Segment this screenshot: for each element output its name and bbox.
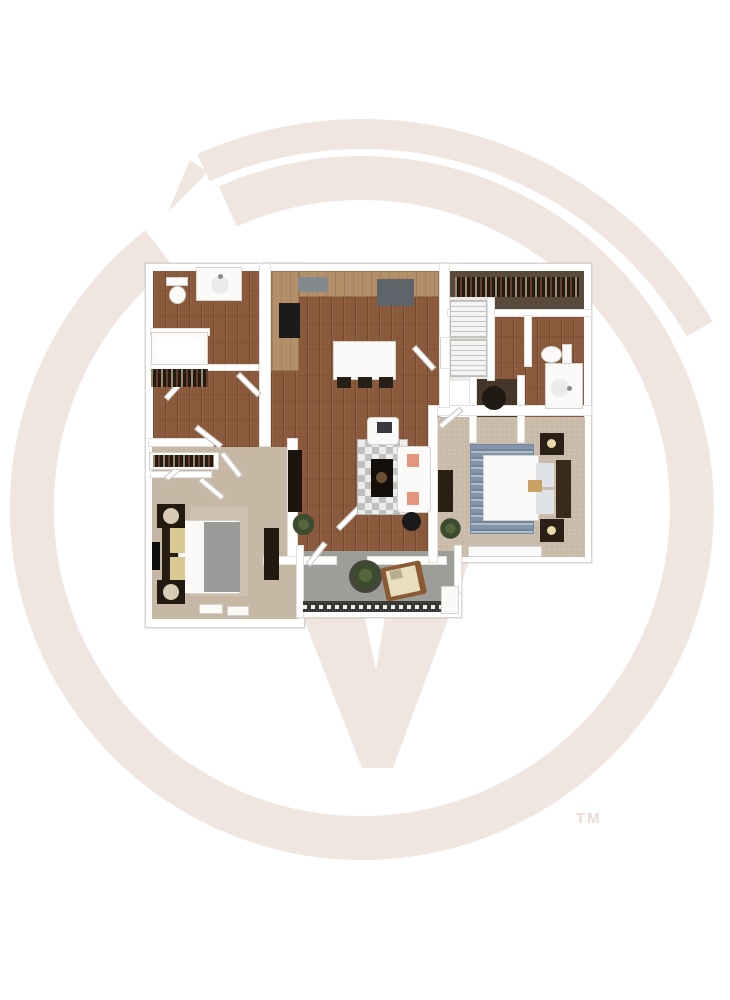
- dresser-right: [438, 470, 453, 512]
- wall-bath2-inner: [524, 315, 532, 367]
- patio-plant: [352, 562, 379, 589]
- barstool-2: [358, 377, 372, 388]
- toilet2-bowl: [541, 346, 562, 363]
- plant-bedroom-right: [440, 518, 461, 539]
- dryer: [450, 339, 487, 377]
- dresser-left: [264, 528, 279, 580]
- patio-post: [441, 586, 459, 614]
- utility-table: [482, 386, 506, 410]
- toilet2-tank: [562, 344, 572, 364]
- wall-laundry-right: [487, 297, 495, 381]
- window-bedroom-left-a: [199, 604, 223, 614]
- table-decor: [376, 472, 387, 483]
- washer: [450, 300, 487, 338]
- toilet1-bowl: [169, 286, 186, 304]
- lamp-left-a: [163, 508, 179, 524]
- kitchen-sink: [298, 277, 328, 292]
- sofa-pillow-a: [407, 454, 419, 467]
- sofa-pillow-b: [407, 492, 419, 505]
- headboard-right: [556, 460, 571, 518]
- faucet2: [567, 386, 572, 391]
- plant-living: [292, 514, 315, 535]
- faucet1: [218, 274, 223, 279]
- barstool-3: [379, 377, 393, 388]
- lamp-left-b: [163, 584, 179, 600]
- side-table: [402, 512, 421, 531]
- bed-right-pillow-b: [536, 490, 554, 514]
- wall-kitchen-closet: [439, 263, 450, 338]
- wall-bath1-kitchen: [259, 263, 271, 447]
- tv-bedroom-left: [152, 542, 160, 570]
- floor-plan-image: TM: [0, 0, 730, 1000]
- media-console: [288, 450, 302, 512]
- window-bedroom-right: [468, 546, 542, 557]
- bathtub-basin: [156, 337, 203, 360]
- closet-left-clothes-rack: [153, 455, 214, 467]
- duvet-left: [204, 522, 240, 592]
- kitchen-island: [333, 341, 396, 380]
- bed-left-pillow-a: [170, 527, 185, 553]
- walkin-closet-clothes: [455, 277, 579, 297]
- lamp-right-a: [547, 439, 556, 448]
- armchair-pillow: [377, 422, 392, 433]
- refrigerator: [377, 279, 414, 306]
- toilet1-tank: [166, 277, 188, 286]
- wall-kitchen-hall-south: [439, 368, 450, 408]
- patio-railing: [303, 601, 444, 612]
- lamp-right-b: [547, 526, 556, 535]
- wall-hall-bedroom-left: [148, 438, 214, 447]
- range: [279, 303, 300, 338]
- barstool-1: [337, 377, 351, 388]
- floor-plan-layer: [0, 0, 730, 1000]
- window-bedroom-left-b: [227, 606, 249, 616]
- bed-right-throw: [528, 480, 542, 492]
- closet-left-clothes: [151, 369, 208, 387]
